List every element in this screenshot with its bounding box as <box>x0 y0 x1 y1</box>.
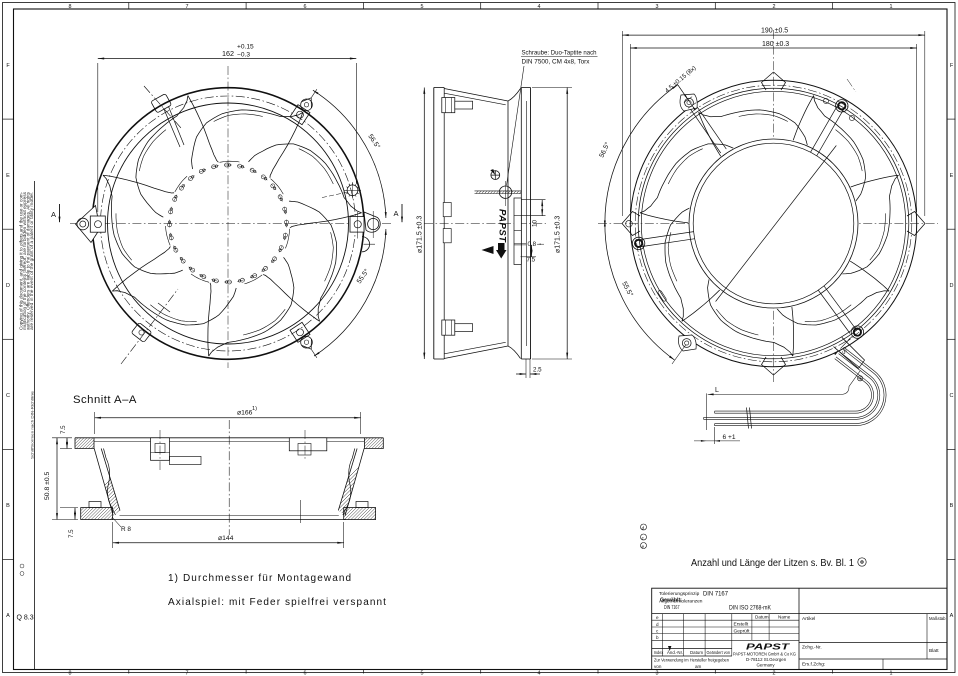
svg-text:Axialspiel: mit Feder spielfre: Axialspiel: mit Feder spielfrei verspann… <box>168 597 387 608</box>
svg-text:8: 8 <box>69 4 72 10</box>
svg-text:2: 2 <box>773 4 776 10</box>
svg-text:L: L <box>715 387 719 394</box>
svg-text:b: b <box>656 635 659 640</box>
svg-text:am: am <box>695 664 702 669</box>
svg-text:+0.15: +0.15 <box>237 44 254 51</box>
svg-text:Blatt: Blatt <box>929 648 939 654</box>
svg-text:1: 1 <box>890 671 893 676</box>
svg-text:1) Durchmesser für Montagewand: 1) Durchmesser für Montagewand <box>168 573 352 584</box>
svg-text:2: 2 <box>773 671 776 676</box>
svg-text:DIN ISO 2768-mK: DIN ISO 2768-mK <box>729 605 772 612</box>
svg-text:4: 4 <box>538 4 541 10</box>
svg-text:6: 6 <box>304 671 307 676</box>
svg-text:PAPST-MOTOREN GmbH & Co KG: PAPST-MOTOREN GmbH & Co KG <box>733 652 797 657</box>
svg-text:Gewählt:: Gewählt: <box>660 598 682 604</box>
svg-text:R 8: R 8 <box>121 526 131 533</box>
svg-text:A: A <box>6 613 10 619</box>
svg-text:DIN 7167: DIN 7167 <box>664 605 680 611</box>
svg-text:Name: Name <box>778 615 791 620</box>
svg-text:Geprüft: Geprüft <box>734 628 751 634</box>
svg-text:E: E <box>6 173 10 179</box>
svg-text:162: 162 <box>222 49 234 58</box>
svg-text:B: B <box>6 503 10 509</box>
svg-text:B: B <box>950 503 954 509</box>
svg-text:Datum: Datum <box>755 615 769 620</box>
svg-text:6 +1: 6 +1 <box>723 434 736 441</box>
svg-text:D: D <box>950 283 954 289</box>
svg-text:Änd.-Nr.: Änd.-Nr. <box>667 650 683 655</box>
svg-text:50.8 ±0.5: 50.8 ±0.5 <box>44 471 51 500</box>
svg-text:A: A <box>51 210 56 219</box>
svg-text:DIN 7167: DIN 7167 <box>703 591 729 598</box>
svg-text:Zur Verwendung im Hersteller f: Zur Verwendung im Hersteller freigegeben <box>654 658 729 663</box>
svg-text:Ers.f.Zchg:: Ers.f.Zchg: <box>802 662 825 668</box>
svg-text:1: 1 <box>890 4 893 10</box>
svg-text:⌀171.5 ±0.3: ⌀171.5 ±0.3 <box>555 216 562 253</box>
svg-text:D: D <box>6 283 10 289</box>
svg-text:7: 7 <box>186 4 189 10</box>
svg-text:Anzahl und Länge der Litzen s: Anzahl und Länge der Litzen s. Bv. Bl. 1 <box>691 558 854 569</box>
svg-text:E: E <box>950 173 954 179</box>
svg-text:3: 3 <box>656 4 659 10</box>
svg-text:10: 10 <box>532 219 539 227</box>
svg-text:Schraube: Duo-Taptite nach: Schraube: Duo-Taptite nach <box>522 50 597 57</box>
svg-text:Geändert von: Geändert von <box>707 650 731 655</box>
svg-text:e: e <box>656 615 659 620</box>
svg-text:4: 4 <box>538 671 541 676</box>
svg-text:5: 5 <box>421 671 424 676</box>
svg-text:are reserved in the event of t: are reserved in the event of the grant o… <box>29 192 34 330</box>
svg-text:7: 7 <box>186 671 189 676</box>
svg-text:von: von <box>654 664 662 669</box>
svg-text:D-78112 St.Georgen: D-78112 St.Georgen <box>746 657 787 662</box>
svg-text:7.5: 7.5 <box>527 257 536 264</box>
svg-text:C: C <box>950 393 954 399</box>
svg-text:8: 8 <box>69 671 72 676</box>
svg-text:Datum: Datum <box>690 650 704 655</box>
svg-text:5: 5 <box>421 4 424 10</box>
svg-text:DIN 7500, CM 4x8, Torx: DIN 7500, CM 4x8, Torx <box>522 59 591 66</box>
svg-text:0.8: 0.8 <box>528 241 537 248</box>
svg-text:Index: Index <box>654 650 664 655</box>
svg-text:−0.3: −0.3 <box>237 52 250 59</box>
svg-text:7.5: 7.5 <box>60 425 67 434</box>
svg-text:6: 6 <box>304 4 307 10</box>
svg-text:Schriftnormen nach DIN-Richtli: Schriftnormen nach DIN-Richtlinie <box>30 390 35 459</box>
svg-text:180 ±0.3: 180 ±0.3 <box>762 41 789 48</box>
svg-text:A: A <box>950 613 954 619</box>
svg-text:⌀144: ⌀144 <box>218 535 234 542</box>
svg-text:⌀166: ⌀166 <box>237 410 253 417</box>
svg-text:Zchg.-Nr.: Zchg.-Nr. <box>802 645 822 651</box>
svg-text:2.5: 2.5 <box>533 367 542 374</box>
svg-text:7.5: 7.5 <box>68 529 75 538</box>
svg-text:Germany: Germany <box>757 663 776 668</box>
svg-text:Q 8.3: Q 8.3 <box>17 615 34 622</box>
svg-text:PAPST: PAPST <box>746 642 790 652</box>
svg-text:Artikel: Artikel <box>802 616 815 622</box>
svg-text:⌀171.5 ±0.3: ⌀171.5 ±0.3 <box>417 216 424 253</box>
svg-text:3: 3 <box>656 671 659 676</box>
svg-text:1): 1) <box>252 406 257 412</box>
svg-text:d: d <box>656 622 659 627</box>
svg-text:Tolerierungsprinzip: Tolerierungsprinzip <box>659 591 700 597</box>
svg-text:Maßstab: Maßstab <box>929 616 946 621</box>
svg-text:Erstellt: Erstellt <box>734 622 749 628</box>
svg-text:PAPST: PAPST <box>497 209 508 243</box>
svg-text:Schnitt A–A: Schnitt A–A <box>73 394 137 406</box>
svg-text:A: A <box>394 209 399 218</box>
svg-text:C: C <box>6 393 10 399</box>
svg-text:190 ±0.5: 190 ±0.5 <box>761 28 788 35</box>
